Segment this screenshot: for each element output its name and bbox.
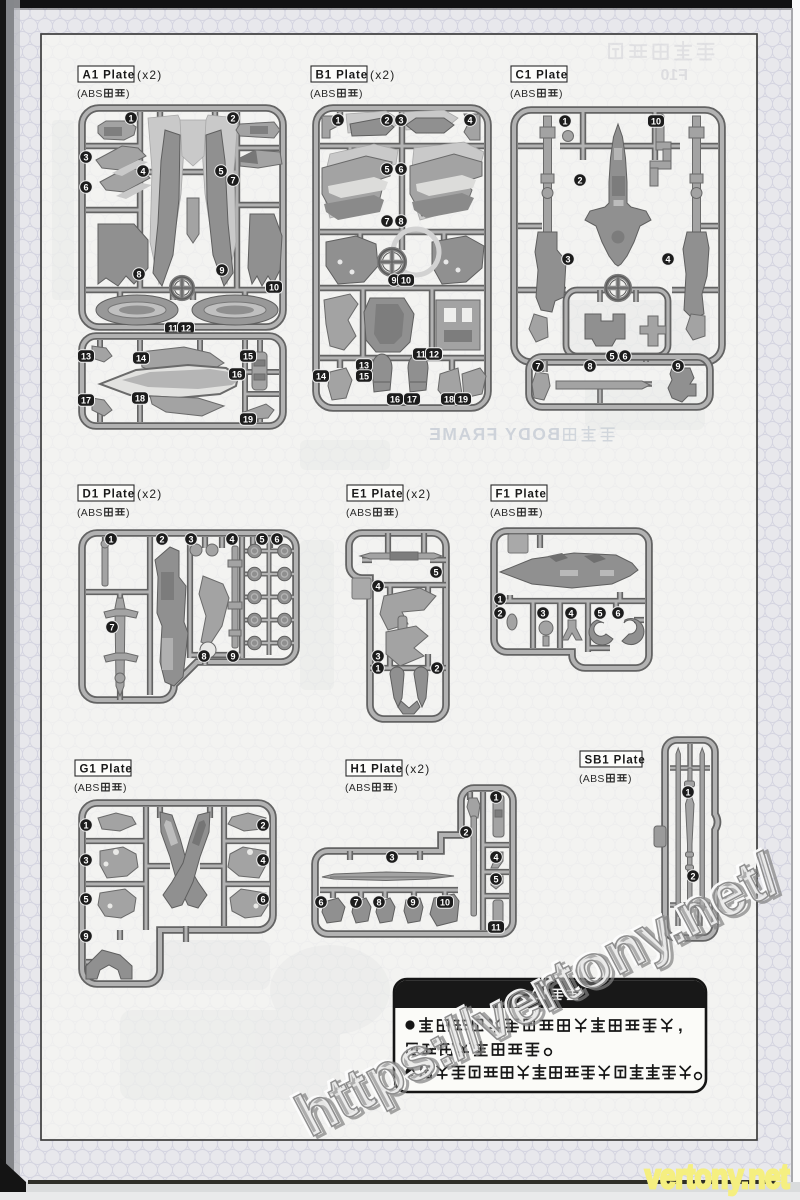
svg-text:13: 13 <box>359 360 369 370</box>
svg-text:10: 10 <box>440 897 450 907</box>
svg-text:8: 8 <box>398 216 403 226</box>
svg-text:G1 Plate: G1 Plate <box>80 764 133 776</box>
svg-text:4: 4 <box>467 115 472 125</box>
svg-text:(ABS: (ABS <box>77 88 103 100</box>
svg-text:9: 9 <box>230 651 235 661</box>
svg-text:9: 9 <box>83 931 88 941</box>
svg-text:9: 9 <box>391 275 396 285</box>
svg-text:A1 Plate: A1 Plate <box>83 70 136 82</box>
svg-text:10: 10 <box>401 275 411 285</box>
svg-text:B1 Plate: B1 Plate <box>316 70 369 82</box>
svg-text:vertony.net: vertony.net <box>645 1158 789 1196</box>
svg-text:(x2): (x2) <box>137 68 162 82</box>
svg-text:6: 6 <box>83 182 88 192</box>
svg-text:2: 2 <box>159 534 164 544</box>
svg-text:11: 11 <box>491 922 501 932</box>
svg-text:9: 9 <box>410 897 415 907</box>
svg-text:2: 2 <box>230 113 235 123</box>
svg-text:): ) <box>628 773 632 785</box>
svg-text:F1 Plate: F1 Plate <box>496 489 547 501</box>
svg-text:13: 13 <box>81 351 91 361</box>
svg-text:3: 3 <box>83 855 88 865</box>
svg-text:15: 15 <box>243 351 253 361</box>
svg-text:5: 5 <box>384 164 389 174</box>
svg-text:1: 1 <box>128 113 133 123</box>
svg-text:11: 11 <box>168 323 178 333</box>
svg-text:8: 8 <box>201 651 206 661</box>
svg-text:): ) <box>126 88 130 100</box>
svg-text:): ) <box>559 88 563 100</box>
svg-text:4: 4 <box>375 581 380 591</box>
svg-text:1: 1 <box>685 787 690 797</box>
svg-text:(x2): (x2) <box>137 487 162 501</box>
svg-text:2: 2 <box>384 115 389 125</box>
svg-text:): ) <box>359 88 363 100</box>
svg-text:6: 6 <box>318 897 323 907</box>
svg-text:8: 8 <box>587 361 592 371</box>
svg-text:): ) <box>394 782 398 794</box>
svg-text:10: 10 <box>269 282 279 292</box>
svg-text:8: 8 <box>136 269 141 279</box>
svg-text:3: 3 <box>540 608 545 618</box>
svg-text:3: 3 <box>83 152 88 162</box>
svg-text:10: 10 <box>651 116 661 126</box>
svg-text:): ) <box>126 507 130 519</box>
svg-text:(x2): (x2) <box>370 68 395 82</box>
svg-text:4: 4 <box>260 855 265 865</box>
svg-text:(ABS: (ABS <box>490 507 516 519</box>
svg-text:BODY FRAME: BODY FRAME <box>428 424 560 444</box>
svg-text:1: 1 <box>375 663 380 673</box>
svg-text:16: 16 <box>232 369 242 379</box>
svg-text:2: 2 <box>260 820 265 830</box>
svg-text:SB1 Plate: SB1 Plate <box>585 755 646 767</box>
svg-text:(ABS: (ABS <box>77 507 103 519</box>
svg-text:3: 3 <box>398 115 403 125</box>
svg-text:16: 16 <box>390 394 400 404</box>
svg-text:7: 7 <box>230 175 235 185</box>
svg-text:1: 1 <box>493 792 498 802</box>
svg-text:12: 12 <box>181 323 191 333</box>
svg-text:1: 1 <box>562 116 567 126</box>
svg-text:8: 8 <box>376 897 381 907</box>
svg-text:5: 5 <box>259 534 264 544</box>
svg-text:6: 6 <box>622 351 627 361</box>
svg-text:17: 17 <box>81 395 91 405</box>
svg-text:H1 Plate: H1 Plate <box>351 764 404 776</box>
svg-text:4: 4 <box>568 608 573 618</box>
svg-text:(ABS: (ABS <box>74 782 100 794</box>
svg-text:E1 Plate: E1 Plate <box>352 489 404 501</box>
svg-text:14: 14 <box>136 353 146 363</box>
svg-text:12: 12 <box>429 349 439 359</box>
svg-text:1: 1 <box>497 594 502 604</box>
svg-text:11: 11 <box>416 349 426 359</box>
svg-text:3: 3 <box>565 254 570 264</box>
svg-text:7: 7 <box>535 361 540 371</box>
svg-text:(ABS: (ABS <box>510 88 536 100</box>
svg-text:(ABS: (ABS <box>346 507 372 519</box>
svg-text:): ) <box>123 782 127 794</box>
svg-text:2: 2 <box>463 827 468 837</box>
svg-text:9: 9 <box>219 265 224 275</box>
svg-text:7: 7 <box>109 622 114 632</box>
svg-text:D1 Plate: D1 Plate <box>83 489 136 501</box>
svg-text:9: 9 <box>675 361 680 371</box>
svg-text:5: 5 <box>218 166 223 176</box>
svg-text:5: 5 <box>493 874 498 884</box>
svg-text:19: 19 <box>243 414 253 424</box>
svg-text:3: 3 <box>188 534 193 544</box>
svg-text:(x2): (x2) <box>406 487 431 501</box>
svg-text:15: 15 <box>359 371 369 381</box>
svg-text:5: 5 <box>83 894 88 904</box>
svg-text:(ABS: (ABS <box>579 773 605 785</box>
svg-text:7: 7 <box>384 216 389 226</box>
svg-text:6: 6 <box>398 164 403 174</box>
svg-text:19: 19 <box>458 394 468 404</box>
svg-text:6: 6 <box>615 608 620 618</box>
svg-text:18: 18 <box>444 394 454 404</box>
svg-text:2: 2 <box>577 175 582 185</box>
svg-text:5: 5 <box>597 608 602 618</box>
svg-text:(x2): (x2) <box>405 762 430 776</box>
svg-text:): ) <box>539 507 543 519</box>
svg-text:1: 1 <box>335 115 340 125</box>
svg-text:3: 3 <box>389 852 394 862</box>
svg-text:14: 14 <box>316 371 326 381</box>
svg-text:,: , <box>678 1016 683 1035</box>
svg-text:18: 18 <box>135 393 145 403</box>
svg-text:6: 6 <box>274 534 279 544</box>
svg-text:4: 4 <box>229 534 234 544</box>
svg-text:5: 5 <box>433 567 438 577</box>
svg-text:): ) <box>395 507 399 519</box>
svg-text:4: 4 <box>140 166 145 176</box>
svg-text:7: 7 <box>353 897 358 907</box>
svg-text:2: 2 <box>497 608 502 618</box>
svg-text:C1 Plate: C1 Plate <box>516 70 569 82</box>
svg-text:2: 2 <box>434 663 439 673</box>
svg-text:4: 4 <box>493 852 498 862</box>
svg-text:17: 17 <box>407 394 417 404</box>
svg-text:1: 1 <box>108 534 113 544</box>
svg-text:5: 5 <box>609 351 614 361</box>
svg-text:3: 3 <box>375 651 380 661</box>
svg-text:1: 1 <box>83 820 88 830</box>
svg-text:4: 4 <box>665 254 670 264</box>
svg-text:(ABS: (ABS <box>310 88 336 100</box>
svg-text:(ABS: (ABS <box>345 782 371 794</box>
svg-text:6: 6 <box>260 894 265 904</box>
svg-text:F10: F10 <box>660 67 688 84</box>
